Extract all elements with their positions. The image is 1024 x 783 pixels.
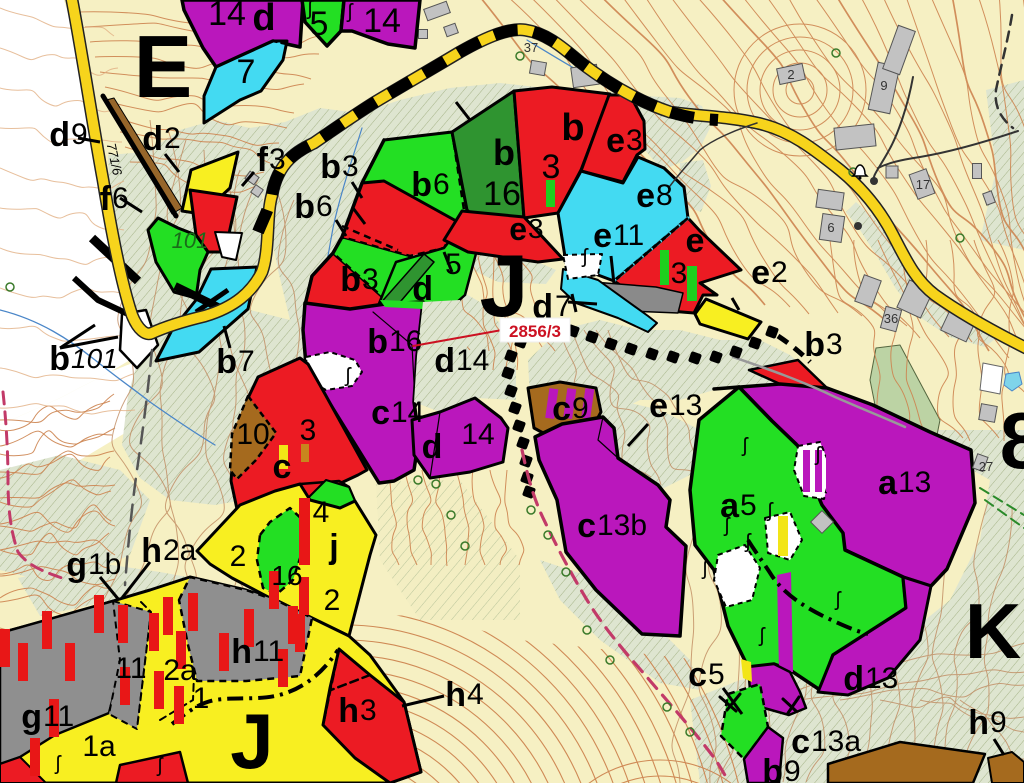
svg-text:e: e [686,222,705,260]
svg-text:1: 1 [193,682,210,715]
svg-text:1b: 1b [88,548,121,581]
svg-text:3: 3 [626,124,643,157]
svg-text:5: 5 [740,489,757,522]
svg-text:13b: 13b [597,509,647,542]
svg-text:16: 16 [271,560,302,591]
svg-text:d: d [434,342,455,380]
svg-text:c: c [552,390,571,428]
svg-text:14: 14 [456,344,489,377]
svg-text:16: 16 [389,325,422,358]
svg-text:e: e [751,254,770,292]
svg-text:8: 8 [656,179,673,212]
svg-text:e: e [593,217,612,255]
svg-text:f: f [257,141,269,179]
svg-text:2a: 2a [163,534,197,567]
svg-text:E: E [134,17,193,116]
svg-text:d: d [252,0,275,39]
svg-text:d: d [422,428,443,466]
svg-text:101: 101 [172,228,209,253]
svg-text:9: 9 [572,392,589,425]
svg-text:3: 3 [826,328,843,361]
svg-text:d: d [412,270,433,308]
svg-text:36: 36 [884,311,898,326]
svg-text:c: c [273,448,292,486]
svg-text:5: 5 [310,5,329,43]
svg-text:2856/3: 2856/3 [509,322,561,341]
svg-text:e: e [606,122,625,160]
svg-text:11: 11 [43,700,74,733]
svg-text:6: 6 [316,190,333,223]
svg-text:11: 11 [115,652,146,685]
svg-text:1a: 1a [82,730,116,763]
svg-text:j: j [328,528,338,566]
svg-text:2: 2 [771,256,788,289]
svg-text:14: 14 [391,396,424,429]
svg-text:h: h [231,633,252,671]
svg-text:d: d [843,660,864,698]
svg-text:d: d [142,120,163,158]
svg-text:11: 11 [253,635,284,668]
svg-text:9: 9 [71,118,88,151]
svg-text:K: K [965,587,1021,675]
svg-text:4: 4 [467,678,484,711]
svg-text:7: 7 [238,345,255,378]
svg-text:g: g [66,546,87,584]
svg-text:5: 5 [708,658,725,691]
svg-text:27: 27 [979,459,993,474]
svg-text:16: 16 [483,175,521,213]
svg-text:a: a [720,487,740,525]
svg-text:b: b [49,340,70,378]
svg-text:g: g [21,698,42,736]
svg-text:13a: 13a [811,725,861,758]
svg-text:b: b [294,188,315,226]
svg-text:11: 11 [613,219,644,252]
svg-text:b: b [340,261,361,299]
svg-text:e: e [649,387,668,425]
svg-text:13: 13 [669,389,702,422]
svg-text:6: 6 [433,168,450,201]
svg-text:9: 9 [880,78,887,93]
svg-text:14: 14 [363,2,401,40]
svg-text:8: 8 [1000,396,1024,485]
svg-text:6: 6 [827,220,834,235]
svg-text:d: d [49,116,70,154]
svg-text:3: 3 [362,263,379,296]
svg-text:101: 101 [71,343,118,374]
svg-text:f: f [100,180,112,218]
svg-text:h: h [968,704,989,742]
svg-text:3: 3 [300,414,317,447]
svg-text:13: 13 [898,466,931,499]
svg-text:3: 3 [528,213,544,244]
svg-text:c: c [577,507,596,545]
svg-text:2: 2 [230,540,247,573]
svg-text:37: 37 [524,40,538,55]
svg-text:3: 3 [542,148,561,186]
svg-text:h: h [338,692,359,730]
svg-text:14: 14 [461,418,494,451]
svg-text:3: 3 [342,150,359,183]
svg-text:10: 10 [236,418,269,451]
svg-text:a: a [878,464,898,502]
svg-text:J: J [230,697,273,783]
svg-text:2: 2 [787,67,794,82]
svg-text:h: h [141,532,162,570]
svg-text:13: 13 [865,662,898,695]
svg-text:c: c [371,394,390,432]
svg-text:b: b [493,132,515,173]
svg-text:b: b [804,326,825,364]
svg-text:b: b [367,323,388,361]
svg-text:17: 17 [916,177,930,192]
svg-text:e: e [509,211,527,247]
svg-text:2: 2 [324,584,341,617]
svg-text:4: 4 [313,496,330,529]
svg-text:3: 3 [671,257,688,290]
svg-text:2: 2 [164,122,181,155]
svg-text:9: 9 [990,706,1007,739]
svg-text:3: 3 [269,143,286,176]
svg-text:h: h [445,676,466,714]
svg-text:7: 7 [237,53,256,91]
svg-text:b: b [216,343,237,381]
svg-text:b: b [561,107,584,149]
svg-text:c: c [688,656,707,694]
svg-text:3: 3 [360,694,377,727]
svg-text:14: 14 [208,0,246,33]
svg-text:b: b [320,148,341,186]
svg-text:b: b [762,753,783,783]
svg-text:b: b [411,166,432,204]
svg-text:e: e [636,177,655,215]
svg-text:9: 9 [784,755,801,783]
